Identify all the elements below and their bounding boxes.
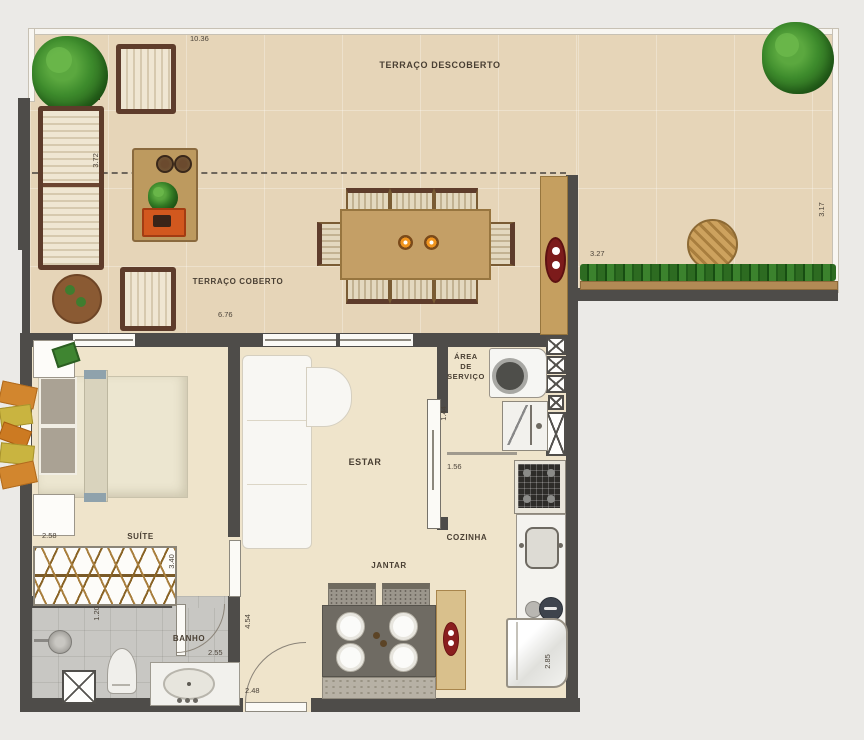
dining-side-counter — [436, 590, 466, 690]
sink-handle-dot — [558, 543, 563, 548]
service-low-partition — [447, 452, 517, 455]
suite-window-glass — [75, 339, 133, 341]
sink-handle-dot — [519, 543, 524, 548]
table-candle-dot — [373, 632, 380, 639]
potted-plant-top-right — [762, 22, 834, 94]
stove — [514, 460, 566, 514]
sun-lounger — [737, 122, 791, 266]
candle-icon — [398, 235, 413, 250]
label-cozinha: COZINHA — [428, 533, 506, 543]
outer-wall-left-upper — [18, 98, 30, 250]
label-suite: SUÍTE — [108, 532, 173, 542]
plate-icon — [336, 643, 365, 672]
counter-bowl-icon — [443, 622, 459, 656]
toilet — [106, 648, 136, 698]
burner-icon — [523, 495, 531, 503]
dim-suite-length: 3.40 — [167, 554, 176, 569]
hedge-planter-base — [580, 281, 838, 290]
washer-door-icon — [492, 358, 528, 394]
dim-terrace-right-width: 3.27 — [590, 249, 605, 258]
plate-icon — [389, 612, 418, 641]
burner-icon — [547, 469, 555, 477]
knob-slot — [544, 607, 557, 610]
terrace-sofa — [38, 106, 104, 270]
cover-projection-line — [32, 172, 566, 174]
dim-banho-length: 2.55 — [208, 648, 223, 657]
bowl-icon — [156, 155, 174, 173]
living-pocket-door-handle — [432, 430, 434, 490]
toilet-bowl — [107, 648, 137, 694]
shower-head-icon — [48, 630, 72, 654]
refrigerator — [506, 618, 568, 688]
faucet-dot — [185, 698, 190, 703]
runner-end — [84, 493, 106, 502]
dining-bench — [322, 677, 436, 699]
label-terraco-coberto: TERRAÇO COBERTO — [172, 277, 304, 287]
faucet-dot — [177, 698, 182, 703]
candle-icon — [424, 235, 439, 250]
bed-pillow — [39, 426, 77, 475]
fridge-hinge-line — [516, 622, 518, 680]
laundry-tank — [502, 401, 548, 451]
runner-end — [84, 370, 106, 379]
terrace-side-table — [132, 148, 198, 242]
terrace-armchair-bottom — [120, 267, 176, 331]
sink-bowl-dot — [552, 261, 560, 269]
vanity-sink — [163, 668, 215, 700]
dim-entry-width: 2.48 — [245, 686, 260, 695]
bbq-counter — [540, 176, 568, 335]
bath-vanity — [150, 662, 240, 706]
sink-bowl-dot — [552, 247, 560, 255]
label-estar: ESTAR — [330, 457, 400, 469]
burner-icon — [523, 469, 531, 477]
plate-green-icon — [65, 285, 75, 295]
dim-suite-width: 2.58 — [42, 531, 57, 540]
terrace-round-table — [52, 274, 102, 324]
sun-lounger — [632, 122, 686, 266]
dim-terrace-covered-width: 6.76 — [218, 310, 233, 319]
parapet-right — [833, 29, 838, 292]
bed-pillow — [39, 377, 77, 426]
sink-bowl-dot — [448, 640, 454, 646]
outdoor-dining-table — [340, 209, 491, 280]
dim-servico-depth: 1.44 — [439, 406, 448, 421]
bed-runner — [84, 370, 108, 502]
label-banho: BANHO — [158, 634, 220, 644]
dim-kitchen-length: 2.85 — [543, 654, 552, 669]
bowl-icon — [174, 155, 192, 173]
orange-tray-icon — [142, 208, 186, 237]
dim-living-length: 4.54 — [243, 614, 252, 629]
nightstand — [33, 494, 75, 536]
dim-kitchen-passage: 1.56 — [447, 462, 462, 471]
potted-plant-top-left — [32, 36, 108, 112]
lounger-side-table — [687, 219, 738, 270]
suite-living-wall — [228, 347, 240, 537]
living-sofa — [242, 355, 312, 549]
dim-terrace-top-width: 10.36 — [190, 34, 209, 43]
bath-shaft-box — [62, 670, 96, 704]
suite-bed — [38, 376, 188, 498]
nightstand — [33, 340, 75, 378]
terrace-sofa-divider — [43, 183, 99, 187]
living-window-mullion — [336, 334, 340, 346]
washing-machine — [489, 348, 547, 398]
table-candle-dot — [380, 640, 387, 647]
dining-table — [322, 605, 436, 677]
plate-green-icon — [76, 297, 86, 307]
suite-door-leaf — [229, 540, 241, 597]
tank-open-door — [506, 405, 532, 445]
dim-banho-width: 1.20 — [92, 606, 101, 621]
covered-terrace-floor — [30, 32, 578, 348]
kitchen-counter — [516, 514, 566, 634]
label-area-servico: ÁREA DE SERVIÇO — [436, 352, 496, 381]
burner-icon — [547, 495, 555, 503]
shaft-box-5 — [546, 412, 566, 456]
terrace-armchair-top — [116, 44, 176, 114]
hedge-planter — [580, 264, 836, 281]
bbq-sink-icon — [545, 237, 566, 283]
plate-icon — [389, 643, 418, 672]
shaft-box-2 — [546, 356, 566, 374]
kitchen-sink — [525, 527, 559, 569]
shaft-box-3 — [546, 375, 566, 393]
plate-icon — [336, 612, 365, 641]
label-jantar: JANTAR — [354, 561, 424, 571]
entry-door-leaf — [245, 702, 307, 712]
faucet-dot — [193, 698, 198, 703]
wardrobe — [33, 546, 177, 606]
parapet-top — [30, 29, 838, 34]
outer-wall-left-mid — [22, 250, 30, 335]
toilet-seat-line — [112, 684, 130, 686]
label-terraco-descoberto: TERRAÇO DESCOBERTO — [328, 60, 552, 72]
sink-bowl-dot — [448, 630, 454, 636]
tank-handle-dot — [536, 423, 542, 429]
sofa-cushion-line — [247, 420, 307, 421]
sofa-cushion-line — [247, 484, 307, 485]
dim-terrace-covered-depth: 3.72 — [91, 153, 100, 168]
shaft-box-1 — [546, 337, 566, 355]
stove-grill — [518, 464, 560, 508]
drain-dot — [187, 682, 191, 686]
shaft-box-4 — [548, 395, 564, 410]
tray-item-icon — [153, 215, 171, 227]
floor-plan: TERRAÇO DESCOBERTO TERRAÇO COBERTO ESTAR… — [0, 0, 864, 740]
dim-terrace-right-depth: 3.17 — [817, 202, 826, 217]
